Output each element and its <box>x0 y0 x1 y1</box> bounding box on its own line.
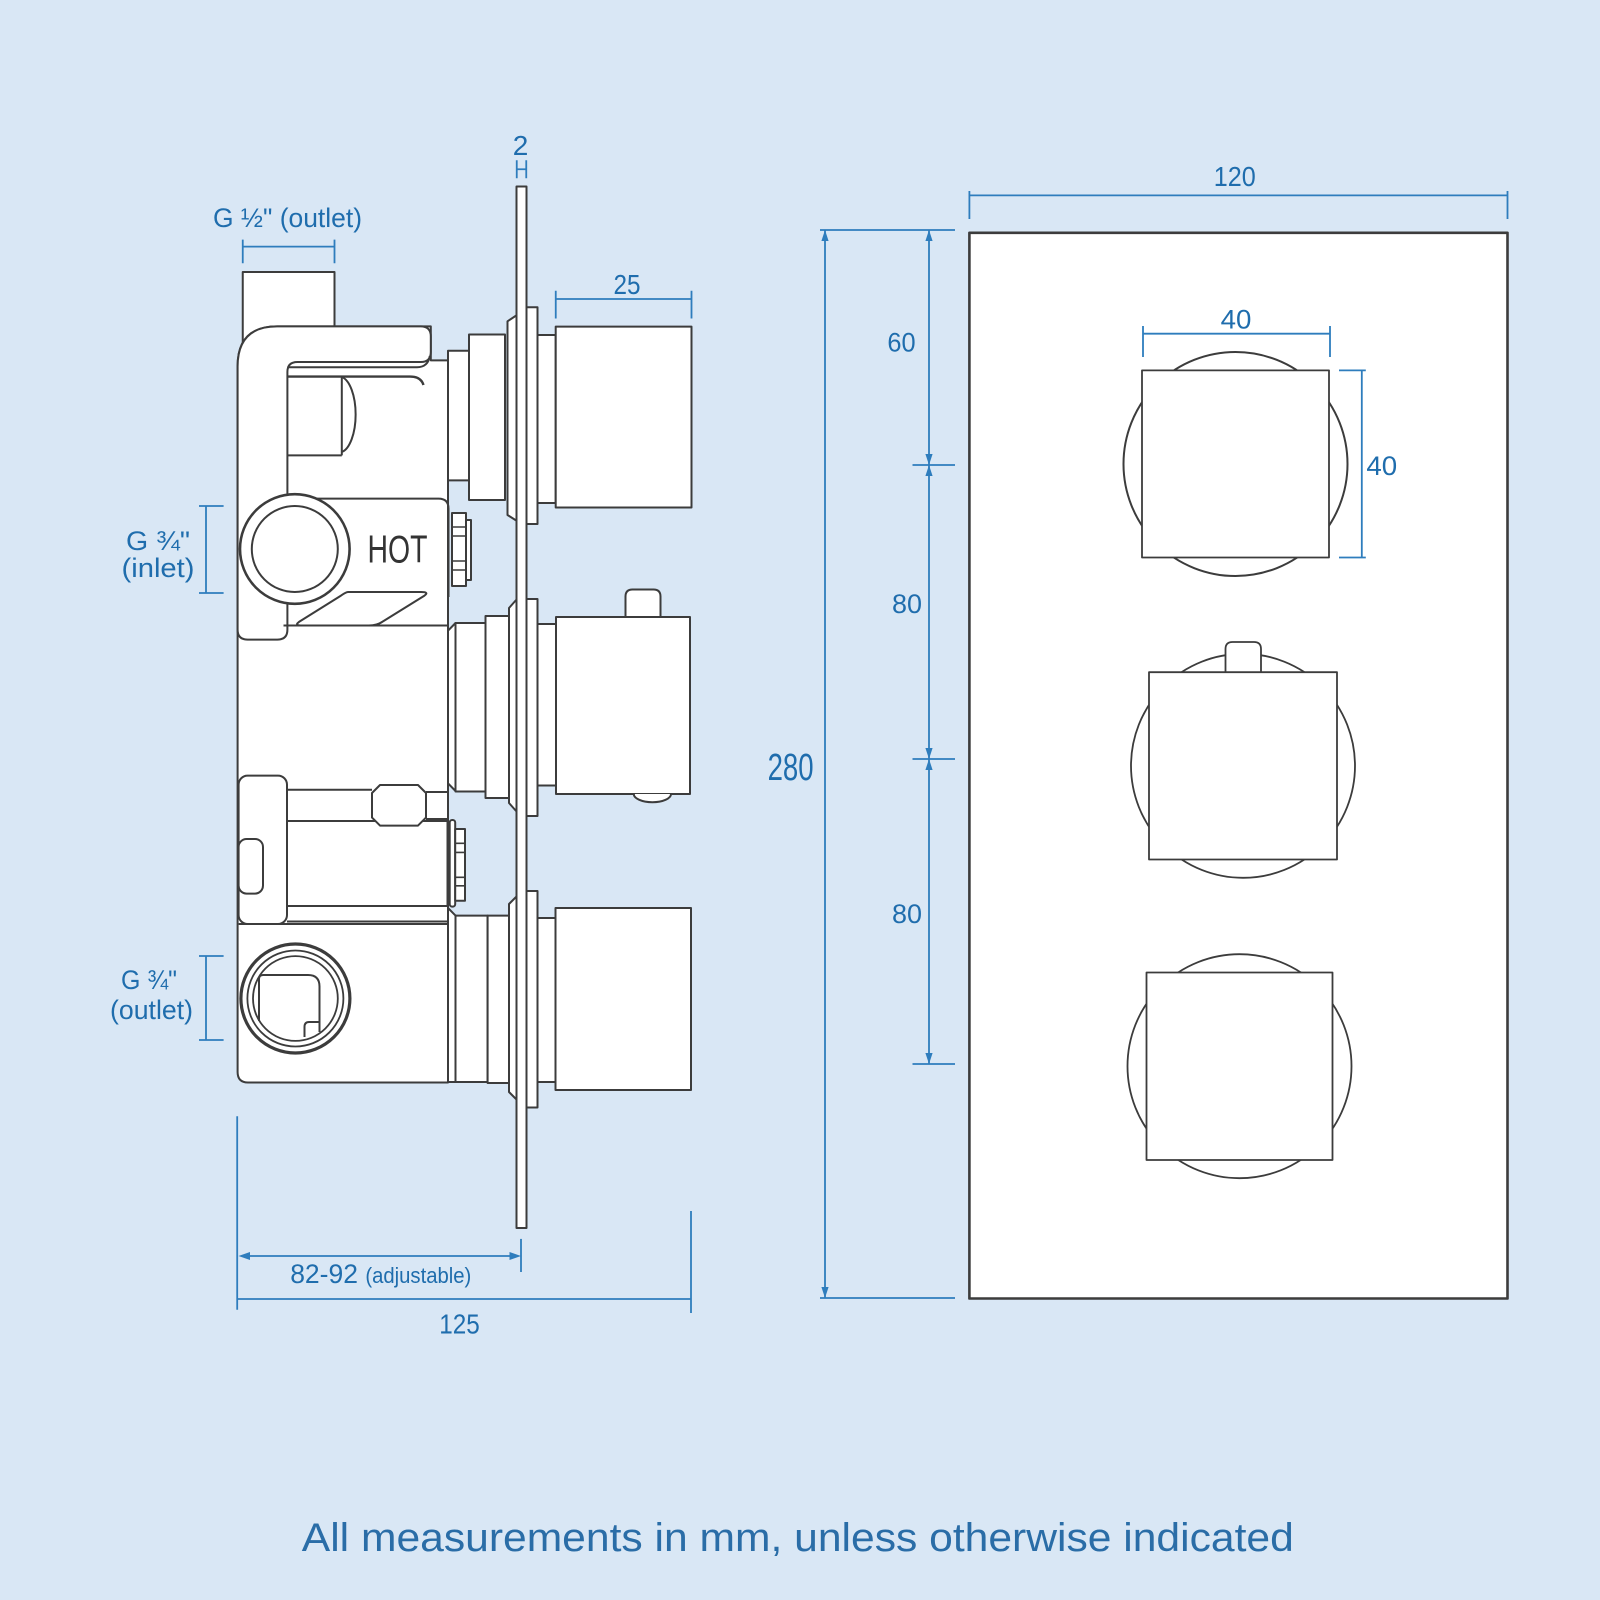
svg-text:80: 80 <box>892 899 922 929</box>
svg-text:25: 25 <box>614 269 641 300</box>
svg-text:2: 2 <box>513 130 529 161</box>
svg-text:(outlet): (outlet) <box>110 995 193 1025</box>
svg-text:All measurements in mm, unless: All measurements in mm, unless otherwise… <box>302 1516 1294 1560</box>
svg-text:G ¾": G ¾" <box>126 526 190 556</box>
svg-text:60: 60 <box>887 328 915 358</box>
svg-text:G ¾": G ¾" <box>121 965 177 995</box>
svg-text:125: 125 <box>439 1309 480 1340</box>
svg-text:HOT: HOT <box>368 529 428 572</box>
svg-text:40: 40 <box>1221 304 1252 334</box>
svg-text:80: 80 <box>892 589 922 619</box>
svg-text:G ½" (outlet): G ½" (outlet) <box>213 203 362 233</box>
svg-text:82-92 (adjustable): 82-92 (adjustable) <box>290 1259 471 1289</box>
svg-text:(inlet): (inlet) <box>122 553 195 583</box>
svg-text:120: 120 <box>1214 161 1256 192</box>
svg-text:280: 280 <box>768 747 814 789</box>
svg-text:40: 40 <box>1366 451 1397 481</box>
